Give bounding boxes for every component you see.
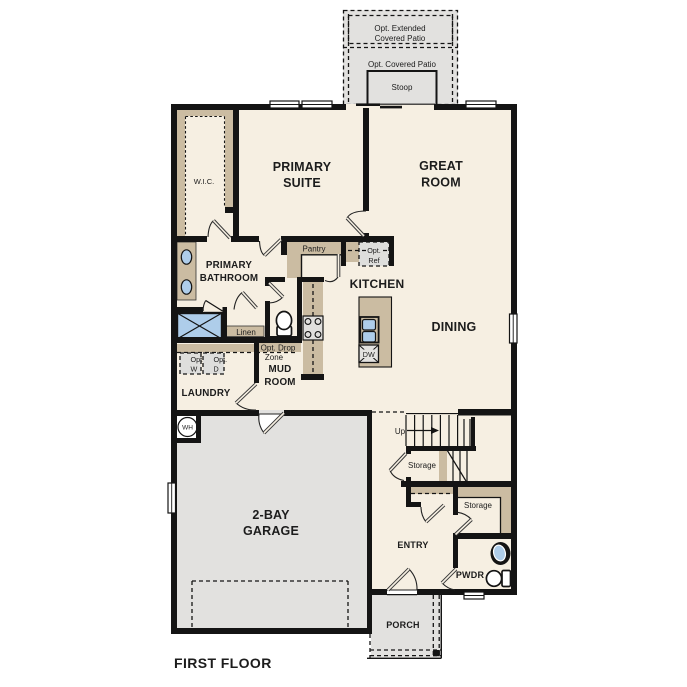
svg-text:Up: Up xyxy=(395,427,406,436)
svg-text:Ref: Ref xyxy=(368,256,379,265)
svg-text:FIRST FLOOR: FIRST FLOOR xyxy=(174,655,272,671)
svg-text:WH: WH xyxy=(182,425,193,432)
svg-text:GREAT: GREAT xyxy=(419,159,463,173)
svg-text:GARAGE: GARAGE xyxy=(243,524,299,538)
svg-text:2-BAY: 2-BAY xyxy=(252,508,290,522)
svg-text:Opt. Covered Patio: Opt. Covered Patio xyxy=(368,60,437,69)
svg-text:W: W xyxy=(191,365,198,374)
svg-text:SUITE: SUITE xyxy=(283,176,321,190)
svg-text:Opt.: Opt. xyxy=(214,355,228,364)
svg-text:Stoop: Stoop xyxy=(392,83,413,92)
svg-text:PWDR: PWDR xyxy=(456,570,485,580)
svg-text:Opt. Drop: Opt. Drop xyxy=(261,344,296,353)
svg-text:PRIMARY: PRIMARY xyxy=(206,260,252,271)
svg-text:Opt.: Opt. xyxy=(367,246,381,255)
svg-text:ROOM: ROOM xyxy=(421,176,461,190)
svg-text:Covered Patio: Covered Patio xyxy=(375,34,426,43)
svg-text:ENTRY: ENTRY xyxy=(397,540,428,550)
svg-text:KITCHEN: KITCHEN xyxy=(350,277,405,291)
svg-text:Opt.: Opt. xyxy=(191,355,205,364)
svg-text:Opt. Extended: Opt. Extended xyxy=(374,24,425,33)
svg-text:Zone: Zone xyxy=(265,353,284,362)
svg-text:DINING: DINING xyxy=(432,320,477,334)
svg-text:Pantry: Pantry xyxy=(302,245,325,254)
svg-text:BATHROOM: BATHROOM xyxy=(200,273,259,284)
svg-text:Linen: Linen xyxy=(236,328,256,337)
svg-text:Storage: Storage xyxy=(464,501,493,510)
svg-text:Storage: Storage xyxy=(408,461,437,470)
svg-text:W.I.C.: W.I.C. xyxy=(194,177,214,186)
svg-text:MUD: MUD xyxy=(269,364,292,375)
svg-text:LAUNDRY: LAUNDRY xyxy=(182,388,231,399)
svg-text:PRIMARY: PRIMARY xyxy=(273,160,332,174)
svg-text:DW: DW xyxy=(363,350,375,359)
svg-text:D: D xyxy=(214,365,219,374)
svg-text:ROOM: ROOM xyxy=(264,377,295,388)
svg-text:PORCH: PORCH xyxy=(386,620,420,630)
